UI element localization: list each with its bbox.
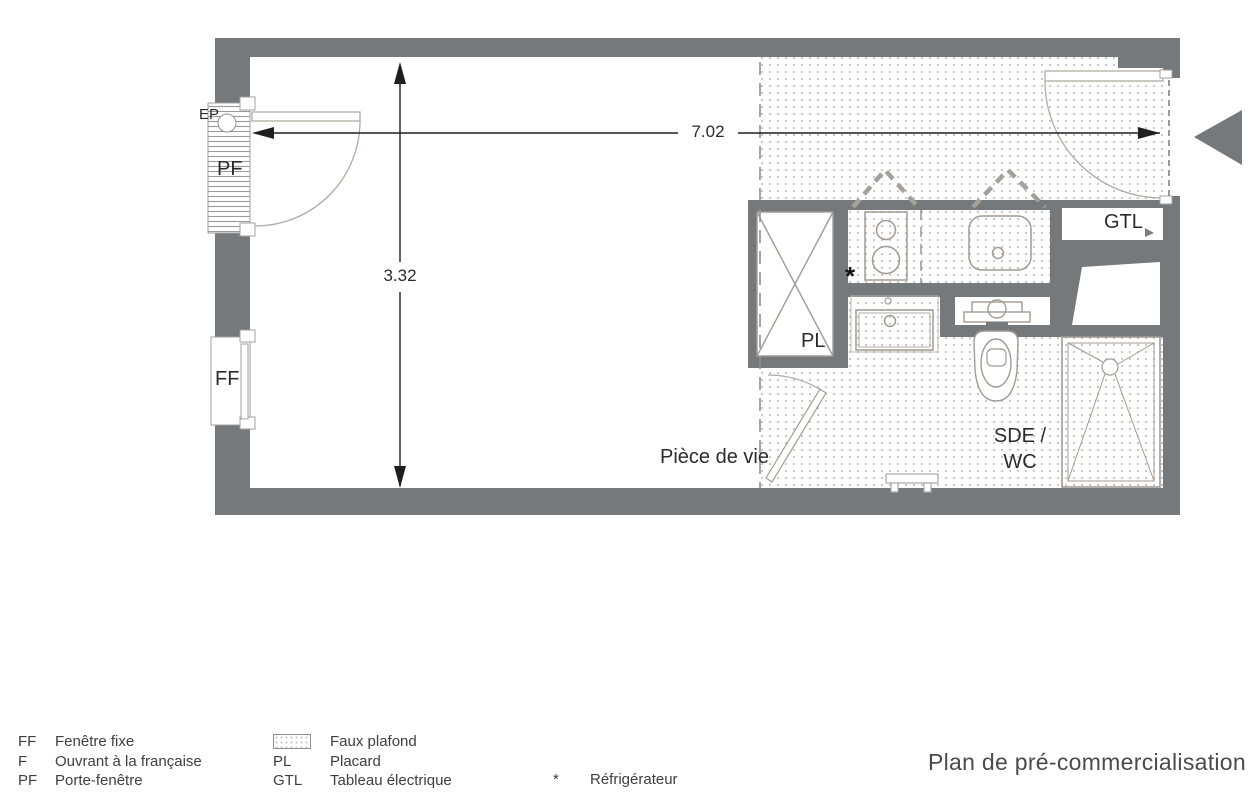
wall-top: [215, 38, 1163, 57]
dimension-height-value: 3.32: [370, 266, 430, 286]
label-living-room: Pièce de vie: [660, 446, 769, 469]
legend-label: Ouvrant à la française: [55, 753, 202, 770]
legend-label: Porte-fenêtre: [55, 772, 143, 789]
fridge-asterisk-icon: *: [845, 263, 855, 289]
legend-label: Tableau électrique: [330, 772, 452, 789]
label-sde-wc-line1: SDE /: [978, 423, 1062, 449]
legend-row-fridge: * Réfrigérateur: [553, 771, 678, 791]
legend-key: PF: [18, 772, 55, 789]
wall-bottom: [215, 488, 1180, 515]
legend-row-pf: PF Porte-fenêtre: [18, 772, 202, 792]
wall-counter-front: [848, 283, 1062, 297]
faux-plafond-swatch-icon: [273, 734, 311, 749]
legend-label: Placard: [330, 753, 381, 770]
shaft-duct: [1072, 262, 1160, 325]
dimension-width-value: 7.02: [678, 122, 738, 142]
label-gtl: GTL: [1104, 211, 1143, 234]
wall-gtl-left: [1050, 200, 1062, 240]
legend-key-asterisk-icon: *: [553, 771, 590, 788]
legend-appliances: * Réfrigérateur: [553, 771, 678, 791]
label-sde-wc: SDE / WC: [978, 423, 1062, 475]
legend-key: F: [18, 753, 55, 770]
legend-row-f: F Ouvrant à la française: [18, 753, 202, 773]
legend-row-faux-plafond: Faux plafond: [273, 733, 452, 753]
legend-row-gtl: GTL Tableau électrique: [273, 772, 452, 792]
wall-closet-top: [757, 200, 848, 212]
legend-key: FF: [18, 733, 55, 750]
legend-label: Réfrigérateur: [590, 771, 678, 788]
legend-row-pl: PL Placard: [273, 753, 452, 773]
entrance-marker-triangle: [1194, 110, 1242, 165]
label-ff: FF: [215, 368, 239, 391]
legend-label: Fenêtre fixe: [55, 733, 134, 750]
label-pl: PL: [801, 330, 825, 353]
label-pf: PF: [217, 158, 243, 181]
ep-downpipe-icon: [218, 114, 236, 132]
legend-row-ff: FF Fenêtre fixe: [18, 733, 202, 753]
legend-windows: FF Fenêtre fixe F Ouvrant à la française…: [18, 733, 202, 792]
page-title: Plan de pré-commercialisation: [928, 749, 1246, 776]
legend-key: GTL: [273, 772, 330, 789]
label-ep: EP: [199, 106, 219, 123]
floor-plan-page: EP PF FF PL GTL SDE / WC Pièce de vie 7.…: [0, 0, 1256, 800]
label-sde-wc-line2: WC: [978, 449, 1062, 475]
wall-right-lower: [1163, 196, 1180, 515]
legend-key: PL: [273, 753, 330, 770]
legend-label: Faux plafond: [330, 733, 417, 750]
wall-top-corner: [1118, 38, 1163, 68]
wall-closet-left: [748, 200, 757, 368]
floor-plan-drawing: [0, 0, 1256, 800]
legend-fittings: Faux plafond PL Placard GTL Tableau élec…: [273, 733, 452, 792]
